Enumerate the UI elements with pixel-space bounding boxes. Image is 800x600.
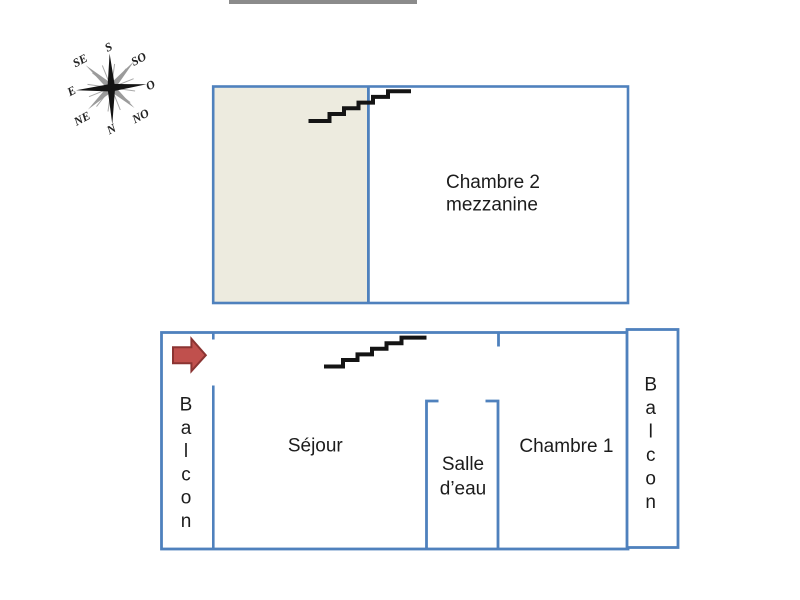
svg-text:o: o: [645, 469, 656, 490]
svg-text:d’eau: d’eau: [440, 478, 487, 499]
svg-text:o: o: [181, 488, 192, 509]
svg-text:a: a: [645, 398, 656, 419]
svg-text:c: c: [646, 445, 656, 466]
svg-text:c: c: [181, 464, 191, 485]
svg-text:B: B: [180, 395, 193, 416]
svg-text:n: n: [181, 511, 192, 532]
svg-text:Chambre 1: Chambre 1: [519, 436, 613, 457]
svg-text:Chambre 2: Chambre 2: [446, 172, 540, 193]
svg-text:n: n: [645, 492, 656, 513]
svg-text:l: l: [184, 441, 188, 462]
svg-text:l: l: [649, 422, 653, 443]
svg-text:Séjour: Séjour: [288, 436, 344, 457]
svg-text:B: B: [644, 375, 657, 396]
svg-text:a: a: [181, 418, 192, 439]
svg-text:Salle: Salle: [442, 454, 484, 475]
svg-text:mezzanine: mezzanine: [446, 195, 538, 216]
